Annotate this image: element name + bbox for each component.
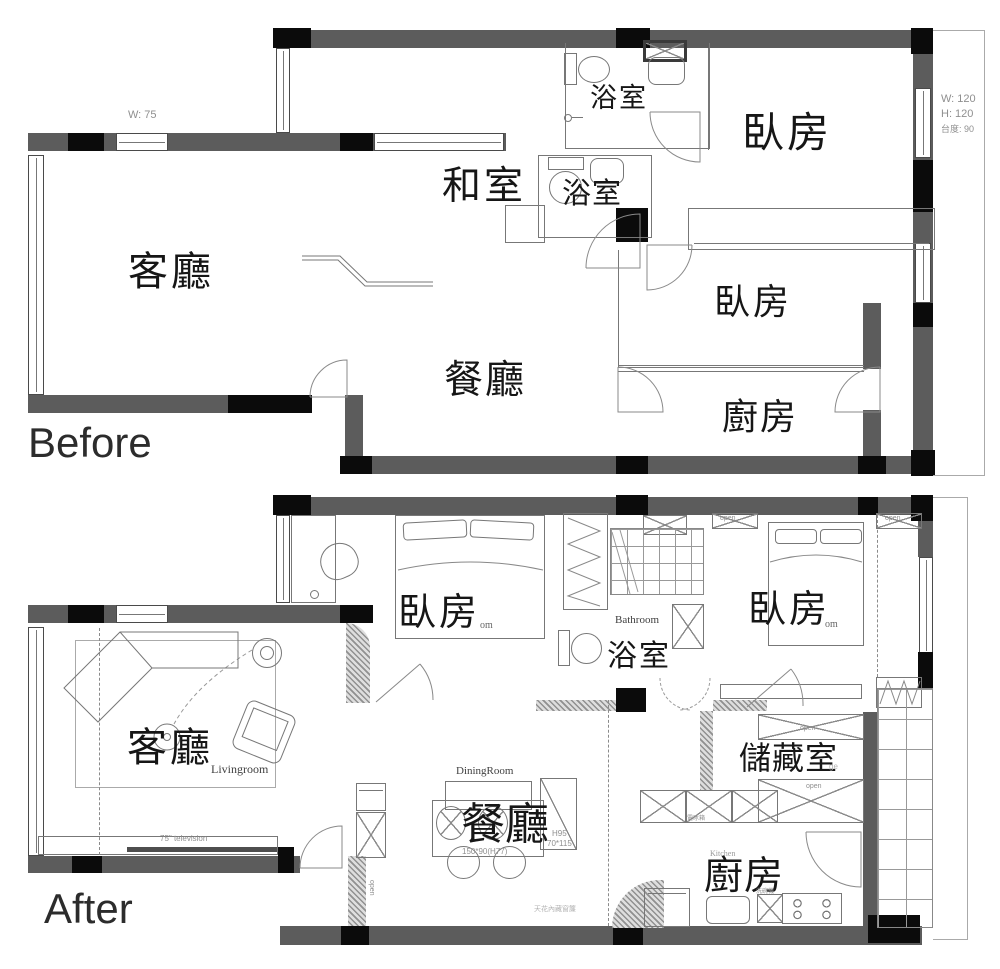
- room-label-dining: 餐廳: [461, 803, 549, 847]
- room-sublabel-storage: ge: [829, 763, 838, 771]
- room-label-bed2: 臥房: [748, 591, 830, 629]
- shower-door-lines: [612, 530, 638, 594]
- after-floor-plan: 臥房 om 臥房 om Bathroom 浴室 客廳 Livingroom Di…: [0, 0, 1000, 969]
- after-title: After: [44, 888, 133, 930]
- open-label-vertical: open: [368, 880, 375, 896]
- bed-cover-curve: [398, 562, 543, 570]
- fridge-label: 電冰箱: [687, 816, 705, 822]
- closet-hanger-zigzag: [880, 681, 920, 704]
- room-label-bath: 浴室: [607, 642, 671, 672]
- kitchen-door-arc: [806, 832, 861, 887]
- bedroom1-door: [376, 664, 433, 702]
- cabinet-height-label: H95: [552, 830, 567, 838]
- bed-cover-curve: [770, 555, 862, 562]
- open-label: open: [806, 783, 822, 790]
- bathroom-door-arcs: [660, 678, 710, 710]
- room-sublabel-bed2: om: [825, 620, 838, 630]
- room-sublabel-bed1: om: [480, 621, 493, 631]
- open-label: open: [885, 515, 901, 522]
- dishwasher-label: 洗碗機: [756, 889, 774, 895]
- layout-guide-curve: [174, 650, 252, 724]
- bedroom2-door: [747, 669, 803, 707]
- open-label: open: [720, 515, 736, 522]
- room-label-bed1: 臥房: [398, 594, 480, 632]
- cabinet-size-label: 70*115: [547, 840, 572, 848]
- room-label-storage: 儲藏室: [739, 742, 838, 774]
- open-label: open: [800, 725, 816, 732]
- tv-label: 75" television: [160, 835, 207, 843]
- entry-door-arc: [300, 826, 342, 868]
- room-label-living-en: Livingroom: [211, 763, 268, 775]
- floorplan-comparison: W: 75 客廳 和室 浴室 浴室 臥房 臥房 餐廳 廚房 W: 120 H: …: [0, 0, 1000, 969]
- room-label-living: 客廳: [127, 728, 213, 768]
- sofa-outline: [64, 632, 238, 722]
- table-dim-label: 150*90(H77): [462, 848, 507, 856]
- room-label-bath-en: Bathroom: [615, 615, 659, 626]
- closet-hanger-zigzag: [568, 518, 600, 606]
- room-label-dining-en: DiningRoom: [456, 766, 513, 777]
- ceiling-note-label: 天花內藏窗簾: [534, 906, 576, 913]
